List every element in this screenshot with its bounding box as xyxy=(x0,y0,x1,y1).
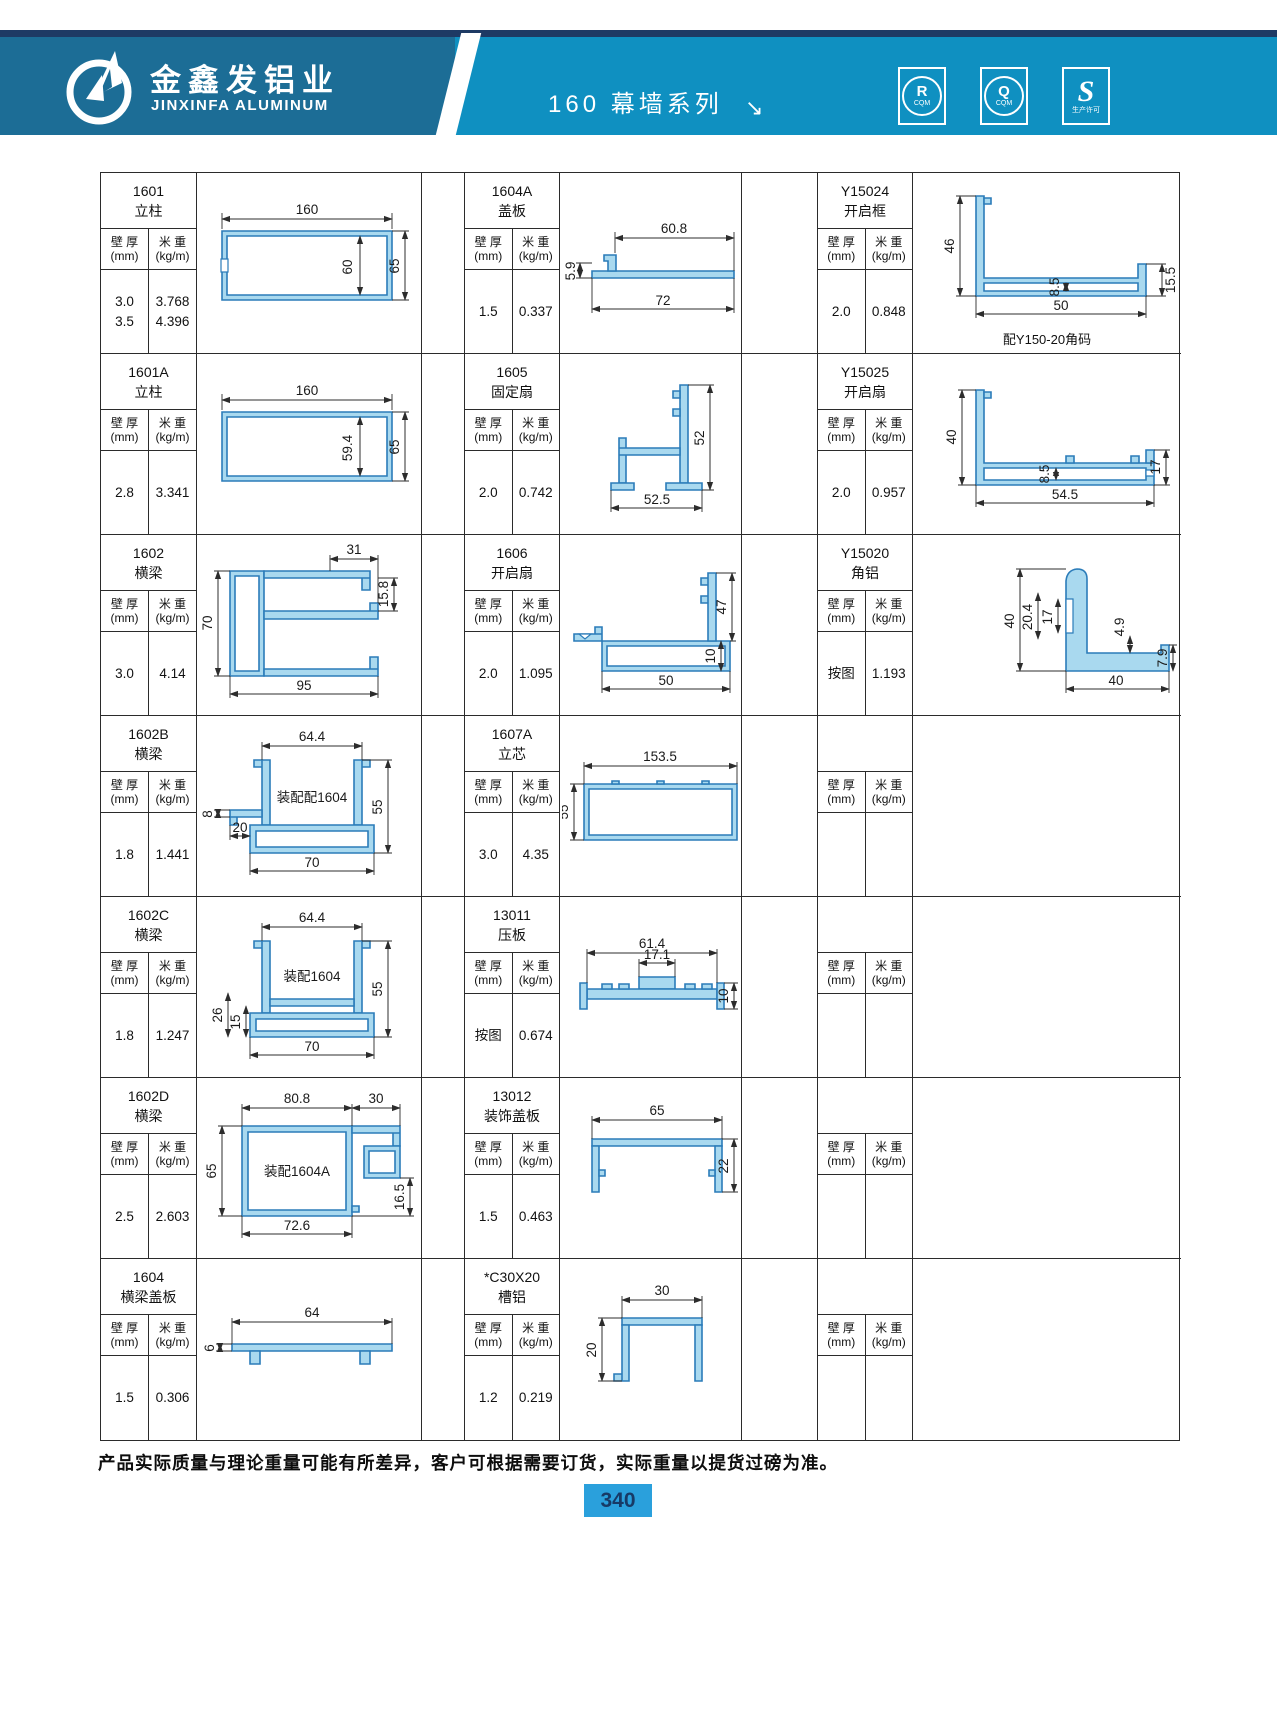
thickness-header: 壁 厚(mm) xyxy=(101,772,149,812)
drawing-area: 160 60 65 xyxy=(197,173,421,353)
info-box: Y15025 开启扇 壁 厚(mm) 米 重(kg/m) 2.0 0.957 xyxy=(817,354,913,534)
weight-label: 米 重 xyxy=(159,778,186,792)
thickness-value: 2.8 xyxy=(115,483,134,503)
weight-values: 4.14 xyxy=(149,632,196,715)
thickness-value: 1.5 xyxy=(115,1388,134,1408)
profile-header: Y15024 开启框 xyxy=(818,173,912,229)
weight-value: 0.463 xyxy=(519,1207,553,1227)
profile-header xyxy=(818,1078,912,1134)
profile-header: 1604A 盖板 xyxy=(465,173,559,229)
weight-value: 4.35 xyxy=(523,845,549,865)
weight-values xyxy=(866,994,913,1077)
thickness-label: 壁 厚 xyxy=(111,959,138,973)
weight-values: 0.306 xyxy=(149,1356,196,1440)
dim-label: 8 xyxy=(202,810,215,818)
info-box: Y15024 开启框 壁 厚(mm) 米 重(kg/m) 2.0 0.848 xyxy=(817,173,913,353)
spec-values: 2.0 1.095 xyxy=(465,632,559,715)
info-box: 壁 厚(mm) 米 重(kg/m) xyxy=(817,1259,913,1440)
profile-shape xyxy=(619,438,680,483)
weight-value: 1.247 xyxy=(156,1026,190,1046)
thickness-label: 壁 厚 xyxy=(828,778,855,792)
spec-header: 壁 厚(mm) 米 重(kg/m) xyxy=(818,410,912,451)
thickness-header: 壁 厚(mm) xyxy=(101,591,149,631)
drawing-area: 52 52.5 xyxy=(560,354,741,534)
spec-header: 壁 厚(mm) 米 重(kg/m) xyxy=(101,772,196,813)
weight-label: 米 重 xyxy=(875,597,902,611)
profile-code: 1601A xyxy=(128,362,168,382)
thickness-values: 2.0 xyxy=(465,632,513,715)
badge-circle: Q CQM xyxy=(984,76,1024,116)
profile-cell-empty: 壁 厚(mm) 米 重(kg/m) xyxy=(741,1259,1181,1440)
arrow-icon: ↘ xyxy=(745,95,763,121)
weight-value: 3.768 xyxy=(156,292,190,312)
weight-header: 米 重(kg/m) xyxy=(513,1315,560,1355)
weight-unit: (kg/m) xyxy=(872,792,906,806)
thickness-unit: (mm) xyxy=(474,249,502,263)
profile-shape xyxy=(230,571,264,676)
spec-header: 壁 厚(mm) 米 重(kg/m) xyxy=(818,591,912,632)
spec-header: 壁 厚(mm) 米 重(kg/m) xyxy=(465,229,559,270)
profile-drawing-Y15025: 40 8.5 17 54.5 xyxy=(916,360,1178,528)
spec-values xyxy=(818,1175,912,1258)
profile-shape xyxy=(614,1325,702,1381)
weight-header: 米 重(kg/m) xyxy=(149,410,196,450)
dim-label: 10 xyxy=(716,988,731,1003)
profile-code: 1602D xyxy=(128,1086,169,1106)
weight-label: 米 重 xyxy=(875,1140,902,1154)
weight-value: 3.341 xyxy=(156,483,190,503)
profile-header: 1601A 立柱 xyxy=(101,354,196,410)
dim-label: 20 xyxy=(232,820,247,835)
dim-label: 72.6 xyxy=(283,1218,309,1233)
weight-label: 米 重 xyxy=(522,778,549,792)
thickness-unit: (mm) xyxy=(474,1335,502,1349)
spec-values: 1.8 1.441 xyxy=(101,813,196,896)
dim-label: 17.1 xyxy=(643,947,669,962)
spec-values: 2.5 2.603 xyxy=(101,1175,196,1258)
profile-name: 立柱 xyxy=(135,201,163,221)
thickness-label: 壁 厚 xyxy=(828,235,855,249)
thickness-header: 壁 厚(mm) xyxy=(818,410,866,450)
weight-label: 米 重 xyxy=(159,235,186,249)
profile-cell-1602: 1602 横梁 壁 厚(mm) 米 重(kg/m) 3.0 4.14 xyxy=(101,535,421,716)
thickness-label: 壁 厚 xyxy=(475,416,502,430)
spec-values: 1.8 1.247 xyxy=(101,994,196,1077)
dim-label: 17 xyxy=(1040,609,1055,624)
drawing-area: 30 20 xyxy=(560,1259,741,1440)
profile-shape xyxy=(352,1206,359,1212)
badge-symbol: S xyxy=(1078,78,1095,106)
thickness-unit: (mm) xyxy=(827,249,855,263)
profile-shape xyxy=(222,231,392,300)
profile-name: 立芯 xyxy=(498,744,526,764)
weight-unit: (kg/m) xyxy=(519,792,553,806)
profile-cell-empty: 壁 厚(mm) 米 重(kg/m) xyxy=(741,897,1181,1078)
profile-cell-1606: 1606 开启扇 壁 厚(mm) 米 重(kg/m) 2.0 1.095 xyxy=(421,535,741,716)
dim-label: 47 xyxy=(714,599,729,614)
profile-name: 横梁 xyxy=(135,563,163,583)
profiles-table: 1601 立柱 壁 厚(mm) 米 重(kg/m) 3.03.5 3.7684.… xyxy=(100,172,1180,1441)
weight-unit: (kg/m) xyxy=(519,430,553,444)
profile-drawing-1601A: 160 59.4 65 xyxy=(202,360,417,528)
spec-values xyxy=(818,813,912,896)
spec-values: 2.0 0.848 xyxy=(818,270,912,353)
spec-values: 按图 1.193 xyxy=(818,632,912,715)
info-box: 1602D 横梁 壁 厚(mm) 米 重(kg/m) 2.5 2.603 xyxy=(101,1078,197,1258)
thickness-values xyxy=(818,1356,866,1440)
spec-header: 壁 厚(mm) 米 重(kg/m) xyxy=(465,772,559,813)
weight-unit: (kg/m) xyxy=(872,611,906,625)
profile-shape xyxy=(250,825,374,853)
dim-label: 52 xyxy=(692,430,707,445)
spec-values: 1.5 0.306 xyxy=(101,1356,196,1440)
spec-header: 壁 厚(mm) 米 重(kg/m) xyxy=(465,953,559,994)
dim-label: 70 xyxy=(304,1039,319,1054)
weight-header: 米 重(kg/m) xyxy=(513,591,560,631)
profile-name: 横梁 xyxy=(135,744,163,764)
profile-cell-1607A: 1607A 立芯 壁 厚(mm) 米 重(kg/m) 3.0 4.35 xyxy=(421,716,741,897)
weight-value: 4.396 xyxy=(156,312,190,332)
thickness-label: 壁 厚 xyxy=(111,235,138,249)
thickness-unit: (mm) xyxy=(474,973,502,987)
dim-label: 50 xyxy=(658,673,673,688)
weight-header: 米 重(kg/m) xyxy=(149,1315,196,1355)
thickness-label: 壁 厚 xyxy=(828,597,855,611)
ext-line xyxy=(598,1296,702,1381)
thickness-values: 按图 xyxy=(818,632,866,715)
weight-values: 0.337 xyxy=(513,270,560,353)
weight-header: 米 重(kg/m) xyxy=(866,1134,913,1174)
profile-header: 1602C 横梁 xyxy=(101,897,196,953)
page-number-badge: 340 xyxy=(584,1484,652,1517)
weight-values: 1.441 xyxy=(149,813,196,896)
company-name-cn: 金鑫发铝业 xyxy=(150,55,340,100)
weight-values xyxy=(866,1175,913,1258)
spec-header: 壁 厚(mm) 米 重(kg/m) xyxy=(101,591,196,632)
drawing-area: 160 59.4 65 xyxy=(197,354,421,534)
profile-shape xyxy=(604,255,616,271)
weight-unit: (kg/m) xyxy=(519,1154,553,1168)
catalog-page: 金鑫发铝业 JINXINFA ALUMINUM 160 幕墙系列 ↘ R CQM… xyxy=(0,0,1277,1721)
info-box: 13012 装饰盖板 壁 厚(mm) 米 重(kg/m) 1.5 0.463 xyxy=(464,1078,560,1258)
thickness-values: 1.5 xyxy=(465,1175,513,1258)
profile-shape xyxy=(264,603,378,619)
spec-header: 壁 厚(mm) 米 重(kg/m) xyxy=(465,591,559,632)
weight-header: 米 重(kg/m) xyxy=(149,1134,196,1174)
footer-note: 产品实际质量与理论重量可能有所差异，客户可根据需要订货，实际重量以提货过磅为准。 xyxy=(98,1450,838,1475)
assembly-label: 装配1604 xyxy=(283,969,341,984)
thickness-unit: (mm) xyxy=(111,611,139,625)
spec-values: 1.5 0.337 xyxy=(465,270,559,353)
thickness-values: 2.5 xyxy=(101,1175,149,1258)
weight-label: 米 重 xyxy=(875,235,902,249)
badge-production-license: S 生产许可 xyxy=(1062,67,1110,125)
weight-label: 米 重 xyxy=(522,597,549,611)
drawing-area: 153.5 55 xyxy=(560,716,741,896)
thickness-unit: (mm) xyxy=(827,973,855,987)
drawing-area: 64 6 xyxy=(197,1259,421,1440)
profile-cell-1601: 1601 立柱 壁 厚(mm) 米 重(kg/m) 3.03.5 3.7684.… xyxy=(101,173,421,354)
weight-header: 米 重(kg/m) xyxy=(866,591,913,631)
badge-symbol: Q xyxy=(998,84,1010,99)
weight-values: 0.848 xyxy=(866,270,913,353)
ext-line xyxy=(570,762,737,840)
weight-values: 1.095 xyxy=(513,632,560,715)
profile-header: 1602 横梁 xyxy=(101,535,196,591)
thickness-label: 壁 厚 xyxy=(828,1140,855,1154)
thickness-label: 壁 厚 xyxy=(475,597,502,611)
profile-header: *C30X20 槽铝 xyxy=(465,1259,559,1315)
profile-name: 固定扇 xyxy=(491,382,533,402)
profile-drawing-1606: 47 10 50 xyxy=(562,541,740,709)
dim-label: 30 xyxy=(368,1091,383,1106)
drawing-area: 46 8.5 15.5 50 配Y150-20角码 xyxy=(913,173,1181,353)
thickness-value: 按图 xyxy=(828,664,855,684)
profile-name: 开启框 xyxy=(844,201,886,221)
weight-unit: (kg/m) xyxy=(519,249,553,263)
thickness-label: 壁 厚 xyxy=(475,1321,502,1335)
dim-label: 40 xyxy=(1002,613,1017,628)
info-box: 1607A 立芯 壁 厚(mm) 米 重(kg/m) 3.0 4.35 xyxy=(464,716,560,896)
thickness-header: 壁 厚(mm) xyxy=(101,410,149,450)
profile-shape xyxy=(984,392,1154,463)
spec-header: 壁 厚(mm) 米 重(kg/m) xyxy=(465,1134,559,1175)
profile-cell-13011: 13011 压板 壁 厚(mm) 米 重(kg/m) 按图 0.674 xyxy=(421,897,741,1078)
weight-values: 2.603 xyxy=(149,1175,196,1258)
thickness-header: 壁 厚(mm) xyxy=(465,591,513,631)
thickness-value: 1.2 xyxy=(479,1388,498,1408)
weight-values xyxy=(866,1356,913,1440)
weight-header: 米 重(kg/m) xyxy=(149,772,196,812)
profile-code: Y15024 xyxy=(841,181,889,201)
thickness-values: 2.8 xyxy=(101,451,149,534)
thickness-unit: (mm) xyxy=(111,1154,139,1168)
assembly-label: 装配配1604 xyxy=(276,790,347,805)
profile-shape xyxy=(622,1318,702,1325)
thickness-value: 3.0 xyxy=(115,292,134,312)
profile-shape xyxy=(352,1126,400,1146)
spec-header: 壁 厚(mm) 米 重(kg/m) xyxy=(101,1315,196,1356)
weight-label: 米 重 xyxy=(159,416,186,430)
profile-name: 横梁 xyxy=(135,1106,163,1126)
dim-label: 55 xyxy=(370,799,385,814)
dim-label: 160 xyxy=(295,383,318,398)
drawing-area: 装配1604 64.4 26 15 55 70 xyxy=(197,897,421,1077)
dim-label: 60.8 xyxy=(660,221,686,236)
thickness-unit: (mm) xyxy=(827,611,855,625)
thickness-value: 2.0 xyxy=(832,302,851,322)
thickness-header: 壁 厚(mm) xyxy=(101,1134,149,1174)
spec-values: 2.0 0.957 xyxy=(818,451,912,534)
profile-drawing-1602D: 装配1604A 80.8 30 65 16.5 72.6 xyxy=(202,1084,417,1252)
spec-values: 1.2 0.219 xyxy=(465,1356,559,1440)
profile-shape xyxy=(611,483,702,490)
profile-drawing-1604: 64 6 xyxy=(202,1266,417,1434)
profile-cell-Y15024: Y15024 开启框 壁 厚(mm) 米 重(kg/m) 2.0 0.848 xyxy=(741,173,1181,354)
dim-label: 64.4 xyxy=(298,910,325,925)
dim-label: 65 xyxy=(204,1163,219,1178)
profile-drawing-1607A: 153.5 55 xyxy=(562,722,740,890)
weight-values: 1.193 xyxy=(866,632,913,715)
thickness-value: 3.0 xyxy=(115,664,134,684)
drawing-area: 装配配1604 64.4 8 20 55 70 xyxy=(197,716,421,896)
dim-label: 59.4 xyxy=(340,434,355,461)
weight-value: 0.337 xyxy=(519,302,553,322)
dim-label: 65 xyxy=(649,1103,664,1118)
thickness-header: 壁 厚(mm) xyxy=(818,1134,866,1174)
thickness-unit: (mm) xyxy=(474,430,502,444)
dim-label: 17 xyxy=(1148,459,1163,474)
weight-value: 1.095 xyxy=(519,664,553,684)
dim-label: 40 xyxy=(1108,673,1123,688)
dim-label: 54.5 xyxy=(1052,487,1078,502)
weight-values: 0.957 xyxy=(866,451,913,534)
profile-name: 角铝 xyxy=(851,563,879,583)
drawing-area xyxy=(913,897,1181,1077)
spec-header: 壁 厚(mm) 米 重(kg/m) xyxy=(818,1134,912,1175)
dim-label: 55 xyxy=(562,804,571,819)
drawing-area: 40 8.5 17 54.5 xyxy=(913,354,1181,534)
profile-drawing-1605: 52 52.5 xyxy=(562,360,740,528)
profile-name: 盖板 xyxy=(498,201,526,221)
spec-values: 3.0 4.35 xyxy=(465,813,559,896)
weight-unit: (kg/m) xyxy=(519,1335,553,1349)
dim-label: 46 xyxy=(942,238,957,253)
profile-name: 横梁盖板 xyxy=(121,1287,177,1307)
thickness-values xyxy=(818,994,866,1077)
spec-header: 壁 厚(mm) 米 重(kg/m) xyxy=(818,953,912,994)
thickness-unit: (mm) xyxy=(827,430,855,444)
profile-header: 1602D 横梁 xyxy=(101,1078,196,1134)
weight-label: 米 重 xyxy=(159,1321,186,1335)
thickness-header: 壁 厚(mm) xyxy=(465,229,513,269)
thickness-label: 壁 厚 xyxy=(111,597,138,611)
thickness-value: 2.5 xyxy=(115,1207,134,1227)
profile-code: 1602B xyxy=(128,724,168,744)
info-box: 1602B 横梁 壁 厚(mm) 米 重(kg/m) 1.8 1.441 xyxy=(101,716,197,896)
thickness-value: 1.8 xyxy=(115,1026,134,1046)
dim-label: 60 xyxy=(340,259,355,274)
dim-label: 16.5 xyxy=(392,1184,407,1210)
dim-label: 22 xyxy=(716,1158,731,1173)
dim-label: 65 xyxy=(387,258,402,273)
info-box: 1602C 横梁 壁 厚(mm) 米 重(kg/m) 1.8 1.247 xyxy=(101,897,197,1077)
dim-label: 15.5 xyxy=(1163,267,1178,293)
spec-header: 壁 厚(mm) 米 重(kg/m) xyxy=(818,229,912,270)
weight-values: 0.219 xyxy=(513,1356,560,1440)
weight-label: 米 重 xyxy=(875,778,902,792)
thickness-header: 壁 厚(mm) xyxy=(818,591,866,631)
thickness-unit: (mm) xyxy=(111,1335,139,1349)
spec-values: 按图 0.674 xyxy=(465,994,559,1077)
weight-header: 米 重(kg/m) xyxy=(866,1315,913,1355)
dim-label: 4.9 xyxy=(1112,618,1127,637)
weight-header: 米 重(kg/m) xyxy=(866,953,913,993)
info-box: 13011 压板 壁 厚(mm) 米 重(kg/m) 按图 0.674 xyxy=(464,897,560,1077)
dim-label: 10 xyxy=(703,648,718,663)
dim-label: 7.9 xyxy=(1155,649,1170,668)
weight-values: 0.463 xyxy=(513,1175,560,1258)
profile-cutout xyxy=(1066,599,1073,633)
drawing-area: 31 15.8 70 95 xyxy=(197,535,421,715)
thickness-value: 1.8 xyxy=(115,845,134,865)
profile-header: 1604 横梁盖板 xyxy=(101,1259,196,1315)
profile-shape xyxy=(232,1344,392,1351)
profile-shape xyxy=(673,391,680,416)
thickness-header: 壁 厚(mm) xyxy=(465,1315,513,1355)
profile-code: 1604 xyxy=(133,1267,164,1287)
profile-shape xyxy=(984,198,991,204)
profile-cell-1604: 1604 横梁盖板 壁 厚(mm) 米 重(kg/m) 1.5 0.306 xyxy=(101,1259,421,1440)
weight-label: 米 重 xyxy=(159,959,186,973)
header-band: 金鑫发铝业 JINXINFA ALUMINUM 160 幕墙系列 ↘ R CQM… xyxy=(0,37,1277,135)
thickness-unit: (mm) xyxy=(827,1154,855,1168)
profile-code: 1605 xyxy=(496,362,527,382)
thickness-unit: (mm) xyxy=(111,973,139,987)
thickness-unit: (mm) xyxy=(111,792,139,806)
profile-shape xyxy=(222,412,392,481)
weight-value: 4.14 xyxy=(159,664,185,684)
weight-header: 米 重(kg/m) xyxy=(866,772,913,812)
badge-subtext: CQM xyxy=(914,99,930,108)
weight-header: 米 重(kg/m) xyxy=(513,772,560,812)
dim-label: 31 xyxy=(346,542,361,557)
profile-cell-Y15025: Y15025 开启扇 壁 厚(mm) 米 重(kg/m) 2.0 0.957 xyxy=(741,354,1181,535)
dim-label: 26 xyxy=(210,1007,225,1022)
thickness-value: 3.0 xyxy=(479,845,498,865)
ext-line xyxy=(1016,569,1177,693)
weight-unit: (kg/m) xyxy=(156,1335,190,1349)
assembly-label: 装配1604A xyxy=(263,1164,329,1179)
profile-name: 立柱 xyxy=(135,382,163,402)
drawing-area: 60.8 72 5.9 xyxy=(560,173,741,353)
weight-unit: (kg/m) xyxy=(156,1154,190,1168)
profile-header: 13011 压板 xyxy=(465,897,559,953)
profile-header xyxy=(818,1259,912,1315)
weight-unit: (kg/m) xyxy=(872,1154,906,1168)
drawing-area xyxy=(913,1078,1181,1258)
weight-value: 2.603 xyxy=(156,1207,190,1227)
badge-cqm-r: R CQM xyxy=(898,67,946,125)
profile-header: 13012 装饰盖板 xyxy=(465,1078,559,1134)
profile-cell-13012: 13012 装饰盖板 壁 厚(mm) 米 重(kg/m) 1.5 0.463 xyxy=(421,1078,741,1259)
dim-label: 20.4 xyxy=(1020,603,1035,630)
profile-name: 横梁 xyxy=(135,925,163,945)
weight-label: 米 重 xyxy=(875,416,902,430)
profile-code: Y15020 xyxy=(841,543,889,563)
thickness-label: 壁 厚 xyxy=(828,959,855,973)
dim-label: 52.5 xyxy=(643,492,669,507)
weight-values: 1.247 xyxy=(149,994,196,1077)
profile-code: 1602C xyxy=(128,905,169,925)
weight-values: 0.742 xyxy=(513,451,560,534)
weight-value: 0.219 xyxy=(519,1388,553,1408)
weight-unit: (kg/m) xyxy=(872,249,906,263)
weight-label: 米 重 xyxy=(522,416,549,430)
badge-circle: S 生产许可 xyxy=(1072,78,1100,115)
dim-label: 65 xyxy=(387,439,402,454)
dim-label: 20 xyxy=(584,1342,599,1357)
spec-header: 壁 厚(mm) 米 重(kg/m) xyxy=(101,410,196,451)
thickness-values: 2.0 xyxy=(818,270,866,353)
thickness-value: 1.5 xyxy=(479,302,498,322)
dim-label: 64.4 xyxy=(298,729,325,744)
weight-unit: (kg/m) xyxy=(156,430,190,444)
profile-shape xyxy=(250,1013,374,1037)
weight-header: 米 重(kg/m) xyxy=(866,229,913,269)
badge-subtext: CQM xyxy=(996,99,1012,108)
profile-code: 1602 xyxy=(133,543,164,563)
